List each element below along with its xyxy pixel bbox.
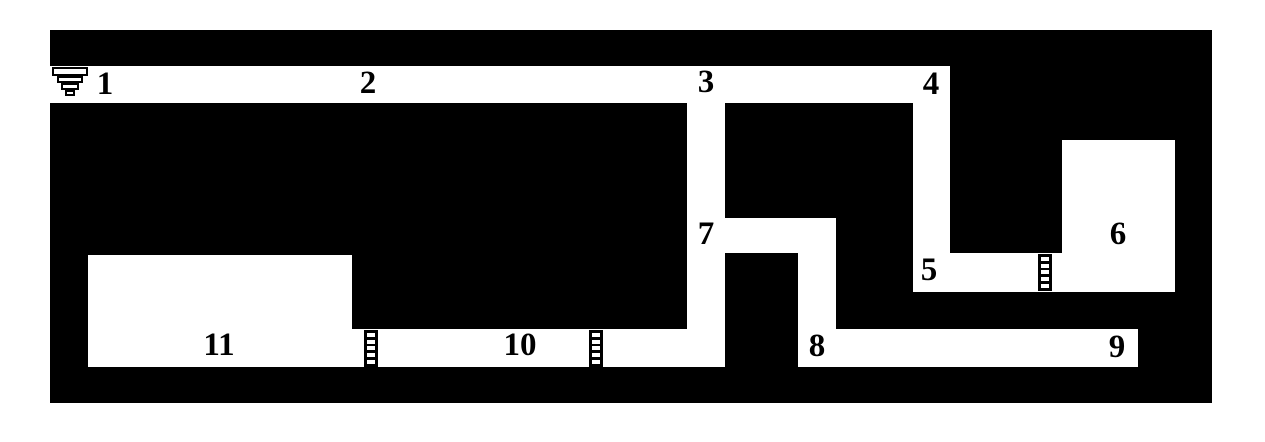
ladder-rung-gap: [1041, 257, 1049, 261]
location-label-6: 6: [1110, 218, 1127, 251]
ladder-rung-gap: [592, 340, 600, 344]
ladder-rung-gap: [367, 333, 375, 337]
ladder-rung-gap: [367, 360, 375, 364]
passage-10: [352, 329, 725, 367]
ladder-rung-gap: [1041, 264, 1049, 268]
ladder-rung-gap: [1041, 270, 1049, 274]
stairs-down-icon-location-1: [52, 67, 88, 96]
dungeon-map: 1234567891011: [0, 0, 1265, 442]
ladder-rung-gap: [367, 353, 375, 357]
stairs-step: [57, 76, 83, 83]
location-label-7: 7: [698, 218, 715, 251]
ladder-rung-gap: [367, 346, 375, 350]
location-label-4: 4: [923, 68, 940, 101]
location-label-8: 8: [809, 330, 826, 363]
ladder-rung-gap: [367, 340, 375, 344]
location-label-5: 5: [921, 254, 938, 287]
ladder-rung-gap: [592, 346, 600, 350]
location-label-2: 2: [360, 67, 377, 100]
ladder-icon-passage-10-left: [364, 330, 378, 367]
ladder-rung-gap: [1041, 284, 1049, 288]
location-label-10: 10: [504, 329, 537, 362]
ladder-rung-gap: [1041, 277, 1049, 281]
stairs-step: [61, 83, 79, 90]
passage-1-2-3-4-top-corridor: [50, 66, 950, 103]
ladder-rung-gap: [592, 353, 600, 357]
ladder-rung-gap: [592, 333, 600, 337]
stairs-step: [65, 90, 75, 96]
stairs-step: [52, 67, 88, 76]
location-label-3: 3: [698, 66, 715, 99]
location-label-11: 11: [203, 329, 234, 362]
ladder-icon-passage-10-right: [589, 330, 603, 367]
location-label-9: 9: [1109, 331, 1126, 364]
location-label-1: 1: [97, 68, 114, 101]
passage-8-9: [798, 329, 1138, 367]
ladder-rung-gap: [592, 360, 600, 364]
shaft-7-to-8: [798, 253, 836, 329]
ladder-icon-passage-5: [1038, 254, 1052, 291]
